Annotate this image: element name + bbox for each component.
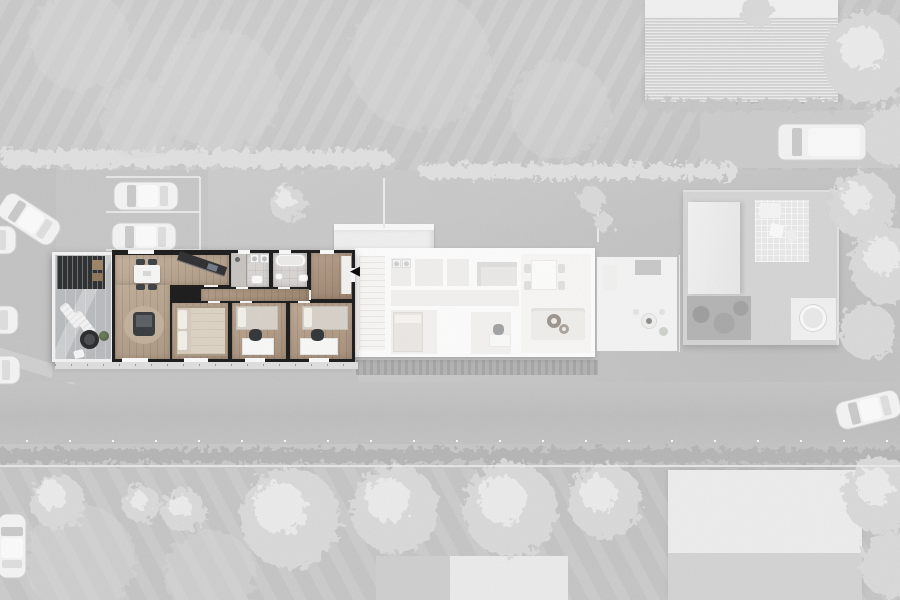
car [0, 514, 26, 578]
door-gap [309, 290, 311, 300]
sink [275, 273, 283, 280]
toilet [298, 274, 308, 282]
car [0, 226, 16, 254]
highlighted-unit-plan[interactable] [52, 246, 358, 366]
chair [659, 309, 665, 315]
lounger [603, 265, 617, 291]
potted-plant [99, 331, 109, 341]
pillow [238, 308, 246, 327]
desk-chair [493, 324, 504, 335]
path-edge [0, 465, 900, 467]
car [114, 182, 178, 210]
hedge-row [0, 150, 392, 167]
dining-chair [136, 284, 145, 290]
shower [232, 254, 247, 286]
washer [250, 254, 259, 263]
kitchen [477, 262, 517, 286]
fence-posts [26, 440, 892, 442]
bathroom [447, 259, 469, 286]
door-gap [208, 301, 220, 303]
hallway [391, 290, 519, 306]
chair [558, 281, 565, 290]
kitchen-counter [477, 262, 517, 267]
door-gap [236, 287, 248, 289]
pillow [178, 331, 187, 350]
car [0, 356, 20, 384]
desk-chair [311, 329, 324, 341]
hedge-row [645, 100, 841, 111]
bathtub-basin [278, 256, 303, 265]
bistro-table [641, 313, 657, 329]
bedroom [391, 310, 437, 354]
storage-box [635, 260, 661, 275]
dryer [260, 254, 269, 263]
outdoor-table [92, 273, 103, 281]
centerpiece [143, 271, 151, 276]
toilet [251, 275, 263, 284]
side-table [559, 324, 569, 334]
bedroom [471, 312, 511, 354]
window [320, 250, 334, 254]
door-gap [278, 287, 290, 289]
window [128, 250, 154, 254]
hedge-row-road [0, 449, 900, 463]
armchair [133, 312, 155, 336]
site-plan-render: ◀ [0, 0, 900, 600]
bed [393, 312, 423, 352]
chair [633, 309, 639, 315]
washer [392, 259, 401, 268]
window [238, 250, 250, 254]
deck-strip [55, 362, 358, 369]
car [0, 306, 18, 334]
deck-ticks [55, 364, 358, 366]
dining-chair [148, 284, 157, 290]
egg-chair [80, 330, 99, 349]
hedge-row [418, 164, 738, 179]
dining-table [134, 265, 160, 283]
entrance-arrow-icon: ◀ [348, 264, 362, 278]
chair [558, 264, 565, 273]
desk-chair [249, 329, 262, 341]
terrace [52, 252, 114, 362]
floorplan-rooms [112, 250, 355, 362]
dining-table [531, 260, 557, 290]
car [834, 389, 900, 432]
staircase [359, 256, 385, 350]
kitchen-sink [207, 263, 218, 272]
utility-room [391, 258, 411, 286]
outdoor-bench [92, 260, 103, 270]
dining-chair [136, 259, 145, 265]
door-gap [240, 301, 252, 303]
door-gap [298, 301, 310, 303]
pillow [178, 310, 187, 329]
bathtub [275, 254, 306, 267]
duvet [191, 308, 225, 354]
dining-chair [148, 259, 157, 265]
bathroom [415, 259, 443, 286]
door-gap [204, 285, 218, 287]
desk [489, 334, 511, 347]
armchair-cushion [136, 315, 152, 327]
living-room [521, 254, 591, 353]
van [778, 124, 866, 160]
chair [524, 264, 531, 273]
potted-plant [659, 327, 668, 336]
parasol-pole [646, 318, 652, 324]
hallway-floor [201, 289, 309, 301]
dryer [402, 259, 411, 268]
shower-drain [235, 257, 240, 262]
window [279, 250, 291, 254]
pillow [304, 308, 312, 327]
neighbor-terrace [597, 257, 677, 351]
pillow [395, 315, 421, 323]
neighbor-unit-plan[interactable] [355, 248, 595, 357]
chair [524, 281, 531, 290]
